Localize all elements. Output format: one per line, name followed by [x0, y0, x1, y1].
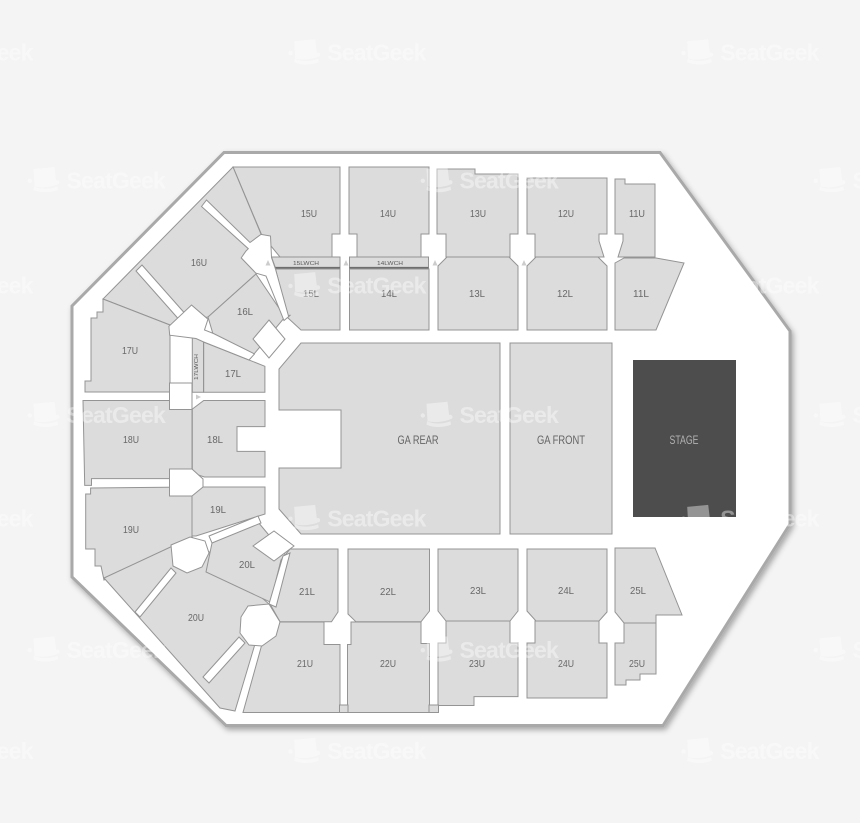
- svg-text:25U: 25U: [629, 658, 645, 670]
- svg-text:16L: 16L: [237, 306, 253, 318]
- svg-text:24L: 24L: [558, 585, 574, 597]
- svg-text:15LWCH: 15LWCH: [293, 261, 319, 267]
- svg-text:24U: 24U: [558, 658, 574, 670]
- svg-text:GA FRONT: GA FRONT: [537, 433, 586, 447]
- svg-text:19L: 19L: [210, 504, 226, 516]
- svg-text:11L: 11L: [633, 288, 649, 300]
- svg-text:GA REAR: GA REAR: [398, 433, 439, 447]
- svg-text:20L: 20L: [239, 559, 255, 571]
- svg-text:14LWCH: 14LWCH: [377, 261, 403, 267]
- svg-text:STAGE: STAGE: [670, 433, 699, 447]
- svg-text:13L: 13L: [469, 288, 485, 300]
- svg-text:17LWCH: 17LWCH: [194, 354, 200, 380]
- svg-text:18U: 18U: [123, 434, 139, 446]
- svg-text:12L: 12L: [557, 288, 573, 300]
- svg-text:17U: 17U: [122, 345, 138, 357]
- svg-text:22U: 22U: [380, 658, 396, 670]
- svg-text:21U: 21U: [297, 658, 313, 670]
- svg-text:20U: 20U: [188, 612, 204, 624]
- svg-text:11U: 11U: [629, 208, 645, 220]
- svg-text:13U: 13U: [470, 208, 486, 220]
- svg-text:23L: 23L: [470, 585, 486, 597]
- svg-text:21L: 21L: [299, 586, 315, 598]
- svg-text:17L: 17L: [225, 368, 241, 380]
- svg-text:22L: 22L: [380, 586, 396, 598]
- svg-text:12U: 12U: [558, 208, 574, 220]
- svg-text:14U: 14U: [380, 208, 396, 220]
- svg-text:16U: 16U: [191, 257, 207, 269]
- svg-text:18L: 18L: [207, 434, 223, 446]
- svg-text:19U: 19U: [123, 524, 139, 536]
- svg-text:25L: 25L: [630, 585, 646, 597]
- svg-text:15U: 15U: [301, 208, 317, 220]
